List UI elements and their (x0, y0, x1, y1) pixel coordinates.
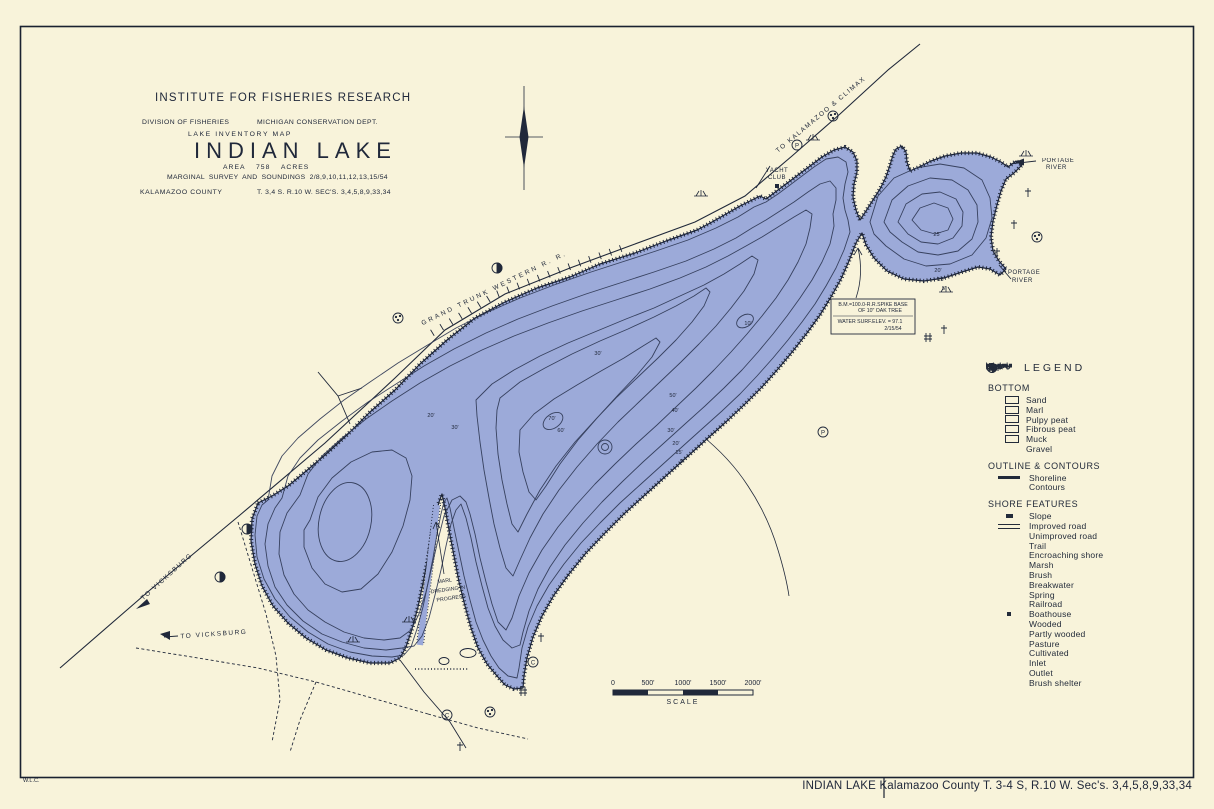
township-label: T. 3,4 S. R.10 W. SEC'S. 3,4,5,8,9,33,34 (257, 189, 391, 196)
legend-item-unimproved-road: Unimproved road (986, 531, 1198, 541)
depth-label: 60' (557, 428, 564, 434)
legend-item-shoreline: Shoreline (986, 473, 1198, 483)
legend-item-muck: Muck (986, 434, 1198, 444)
depth-label: 20' (934, 268, 941, 274)
depth-label: 20' (672, 441, 679, 447)
legend-item-inlet: Inlet (986, 658, 1198, 668)
benchmark-text: 2/15/54 (884, 326, 901, 332)
pulpy-peat-swatch-icon (1004, 415, 1019, 423)
marl-swatch-icon (1004, 406, 1019, 414)
legend-item-contours: 5'Contours (986, 483, 1198, 493)
yacht-club-label: CLUB (768, 175, 786, 181)
legend-item-marl: Marl (986, 405, 1198, 415)
island (439, 658, 449, 665)
legend-item-boathouse: Boathouse (986, 609, 1198, 619)
legend-item-wooded: Wooded (986, 619, 1198, 629)
depth-label: 10' (744, 321, 751, 327)
island (460, 649, 476, 658)
depth-label: 15' (675, 450, 682, 456)
scale-label: SCALE (667, 699, 700, 706)
depth-label: 70' (548, 416, 555, 422)
depth-label: 50' (669, 393, 676, 399)
legend-item-pulpy-peat: Pulpy peat (986, 415, 1198, 425)
legend-item-cultivated: CCultivated (986, 649, 1198, 659)
north-compass-icon (505, 86, 543, 190)
legend-item-breakwater: Breakwater (986, 580, 1198, 590)
depth-label: 25' (933, 232, 940, 238)
area-label: AREA 758 ACRES (223, 164, 309, 171)
depth-label: 20' (427, 413, 434, 419)
legend-item-outlet: Outlet (986, 668, 1198, 678)
to-vicksburg-rail-label: TO VICKSBURG (140, 552, 194, 602)
benchmark-text: WATER SURF.ELEV. = 97.1 (838, 319, 903, 325)
division-label: DIVISION OF FISHERIES (142, 119, 229, 126)
scale-bar: 0 500' 1000' 1500' 2000' SCALE (611, 680, 761, 706)
legend-item-pasture: PPasture (986, 639, 1198, 649)
marl-label: PROGRESS (436, 594, 466, 604)
benchmark-text: OF 10" OAK TREE (858, 308, 902, 314)
road-sw-arrow (160, 631, 170, 640)
svg-text:C: C (531, 661, 536, 667)
legend-item-brush: Brush (986, 570, 1198, 580)
portage-river-top-label: PORTAGE (1042, 158, 1074, 164)
fibrous-peat-swatch-icon (1004, 425, 1019, 433)
muck-swatch-icon (1004, 435, 1019, 443)
portage-river-bottom-label: PORTAGE (1008, 270, 1040, 276)
depth-label: 40' (671, 408, 678, 414)
county-label: KALAMAZOO COUNTY (140, 189, 223, 196)
portage-river-bottom-label: RIVER (1012, 278, 1033, 284)
legend-item-sand: Sand (986, 395, 1198, 405)
scale-tick: 500' (641, 680, 654, 687)
depth-label: 30' (594, 351, 601, 357)
legend-item-partly-wooded: Partly wooded (986, 629, 1198, 639)
legend-outline-heading: OUTLINE & CONTOURS (988, 461, 1198, 471)
yacht-club-boathouse-icon (775, 184, 779, 188)
depth-label: 30' (667, 428, 674, 434)
scale-tick: 2000' (745, 680, 762, 687)
map-type-label: LAKE INVENTORY MAP (188, 131, 292, 138)
to-vicksburg-road-label: TO VICKSBURG (180, 629, 247, 641)
depth-label: 30' (451, 425, 458, 431)
depth-label: 15' (937, 277, 944, 283)
scale-tick: 1500' (710, 680, 727, 687)
benchmark-leader (854, 248, 862, 298)
improved-road-icon (996, 524, 1022, 529)
lake-name-title: INDIAN LAKE (194, 138, 397, 164)
legend: LEGEND BOTTOM Sand Marl Pulpy peat Fibro… (986, 362, 1198, 688)
legend-item-slope: Slope (986, 511, 1198, 521)
survey-label: MARGINAL SURVEY AND SOUNDINGS 2/8,9,10,1… (167, 174, 388, 181)
svg-text:C: C (445, 714, 450, 720)
svg-text:P: P (821, 431, 825, 437)
legend-item-encroaching-shore: Encroaching shore (986, 551, 1198, 561)
legend-item-spring: Spring (986, 590, 1198, 600)
institute-title: INSTITUTE FOR FISHERIES RESEARCH (155, 92, 411, 104)
marl-label: MARL (437, 577, 452, 585)
svg-text:P: P (795, 144, 799, 150)
sheet-footer-title: INDIAN LAKE Kalamazoo County T. 3-4 S, R… (802, 780, 1192, 792)
legend-item-fibrous-peat: Fibrous peat (986, 424, 1198, 434)
lake-shoreline (251, 146, 1022, 689)
boathouse-icon (996, 612, 1022, 616)
department-label: MICHIGAN CONSERVATION DEPT. (257, 119, 378, 126)
depth-label: 5' (680, 459, 684, 465)
legend-bottom-heading: BOTTOM (988, 383, 1198, 393)
to-kalamazoo-label: TO KALAMAZOO & CLIMAX (775, 75, 867, 154)
legend-item-gravel: Gravel (986, 444, 1198, 454)
legend-item-improved-road: Improved road (986, 521, 1198, 531)
portage-river-top-label: RIVER (1046, 165, 1067, 171)
legend-item-marsh: Marsh (986, 560, 1198, 570)
legend-item-railroad: Railroad (986, 600, 1198, 610)
map-sheet: 70' 60' 50' 40' 30' 20' 15' 5' 30' 20' 1… (0, 0, 1214, 809)
yacht-club-label: YACHT (766, 168, 788, 174)
slope-icon (996, 514, 1022, 518)
scale-tick: 0 (611, 680, 615, 687)
legend-item-trail: Trail (986, 541, 1198, 551)
surveyor-initials: W.L.C. (23, 778, 40, 784)
legend-item-brush-shelter: Brush shelter (986, 678, 1198, 688)
legend-title: LEGEND (1024, 362, 1198, 374)
sand-swatch-icon (1004, 396, 1019, 404)
scale-tick: 1000' (675, 680, 692, 687)
shoreline-icon (996, 476, 1022, 478)
legend-shore-heading: SHORE FEATURES (988, 499, 1198, 509)
